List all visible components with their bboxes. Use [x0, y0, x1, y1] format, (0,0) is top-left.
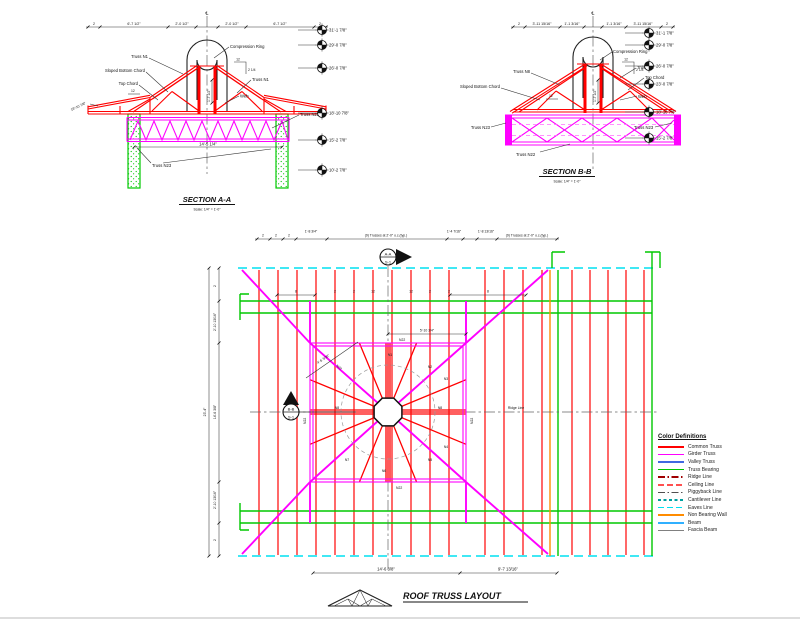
label-girder: Truss N22: [516, 152, 536, 157]
legend-label: Common Truss: [688, 444, 722, 450]
label-eave-elevation: 18'-10 7/8": [70, 101, 87, 112]
dim-label: 1'-8 13/16": [478, 230, 495, 234]
dim-label: 2: [262, 234, 264, 238]
label-compression-ring: Compression Ring: [613, 49, 648, 54]
dim-label: 2: [288, 234, 290, 238]
dim-label: 2: [275, 234, 277, 238]
legend-item: Beam: [658, 519, 754, 527]
label-sloped-bottom-chord: Sloped Bottom Chord: [460, 84, 501, 89]
marker-label: A-A: [385, 252, 392, 257]
radial-label: N3: [444, 377, 448, 381]
legend-label: Valley Truss: [688, 459, 715, 465]
label-web: Web: [240, 94, 249, 99]
marker-sheet: S-1: [288, 415, 295, 420]
elevation-label: 26'-0 7/8": [656, 64, 674, 69]
centerline-symbol: ℄: [591, 11, 596, 16]
legend-item: Truss Bearing: [658, 466, 754, 474]
legend-item: Girder Truss: [658, 451, 754, 459]
truss-mark: 8: [295, 290, 297, 294]
section-a-title: SECTION A-A: [183, 195, 231, 204]
legend-item: Ceiling Line: [658, 481, 754, 489]
n22-left: N22: [303, 418, 307, 424]
girder-dim: 5'-10 3/4": [387, 329, 468, 336]
roof-plan: 2 2 2 1'-8 3/4" (9) Trusses at 2'-0" o.c…: [203, 230, 660, 575]
dim-label: (9) Trusses at 2'-0" o.c.(typ.): [365, 234, 408, 238]
legend-label: Beam: [688, 520, 701, 526]
radial-label: N7: [345, 458, 349, 462]
elevation-label: 10'-2 7/8": [329, 168, 347, 173]
slope-rise: 2 1/4: [248, 68, 256, 72]
dim-label: 1'-1 3/16": [564, 22, 580, 26]
dim-label: 1'-7 1/2": [207, 89, 211, 102]
centerline-symbol: ℄: [205, 11, 210, 16]
legend-label: Ceiling Line: [688, 482, 714, 488]
slope-run: 12: [131, 89, 135, 93]
elevation-label: 29'-0 7/8": [329, 43, 347, 48]
elevation-label: 23'-0 7/8": [656, 82, 674, 87]
legend-label: Cantilever Line: [688, 497, 721, 503]
elevation-label: 31'-1 7/8": [329, 28, 347, 33]
slope-run: 12: [236, 58, 240, 62]
elevation-label: 26'-0 7/8": [329, 66, 347, 71]
legend-label: Piggyback Line: [688, 489, 722, 495]
legend-label: Eaves Line: [688, 505, 713, 511]
girder-webs: [130, 121, 288, 140]
girder-end-left: [505, 115, 512, 145]
dim-label: 6'-7 1/2": [127, 22, 141, 26]
plan-centerlines: [250, 266, 658, 572]
elevation-label: 18'-10 7/8": [656, 110, 676, 115]
elevation-label: 15'-2 7/8": [656, 136, 674, 141]
marker-sheet: S-1: [385, 260, 392, 265]
legend-label: Fascia Beam: [688, 527, 717, 533]
legend-line-sample: [658, 454, 684, 456]
dim-label: 3'-11 15/16": [533, 22, 553, 26]
truss-mark: 2: [429, 290, 431, 294]
plan-top-dims: 2 2 2 1'-8 3/4" (9) Trusses at 2'-0" o.c…: [255, 230, 559, 241]
truss-mark: 2: [334, 290, 336, 294]
n22-right: N22: [470, 418, 474, 424]
truss-marks: 8 2 2 12 12 2 2 8: [276, 290, 528, 297]
elevation-label: 18'-10 7/8": [329, 111, 349, 116]
legend-line-sample: [658, 469, 684, 471]
dim-label: 2: [518, 22, 520, 26]
ring-height-dim: 1'-7 1/2": [207, 79, 214, 105]
legend-item: Cantilever Line: [658, 496, 754, 504]
section-a: ℄ 2 6'-7 1/2" 2'-0 1/2" 2'-0 1/2" 6'-7 1…: [70, 11, 349, 212]
legend-line-sample: [658, 484, 684, 486]
legend-item: Piggyback Line: [658, 489, 754, 497]
label-truss-left: Truss N1: [131, 54, 149, 59]
legend-item: Ridge Line: [658, 473, 754, 481]
section-b-scale: Scale: 1/4" = 1'-0": [554, 180, 582, 184]
label-top-chord: Top Chord: [119, 81, 139, 86]
truss-bearing-lines: [240, 252, 660, 556]
dim-label: 2'-0 1/2": [225, 22, 239, 26]
label-compression-ring: Compression Ring: [230, 44, 265, 49]
section-marker-a: A-A S-1: [380, 249, 412, 265]
dim-label: 5'-10 3/4": [420, 329, 435, 333]
legend-item: Fascia Beam: [658, 527, 754, 535]
label-web: Web: [638, 94, 647, 99]
slope-marker-right: 12 2 1/4: [234, 58, 256, 75]
legend-item: Valley Truss: [658, 458, 754, 466]
slope-run: 12: [549, 94, 553, 98]
label-bearing: Truss N23: [152, 163, 172, 168]
slope-marker-left: 12: [546, 94, 558, 99]
legend-line-sample: [658, 499, 684, 501]
radial-label: N4: [444, 445, 448, 449]
plan-left-dims: 23'-4" 2 2'-10 13/16" 14'-6 3/8" 2'-10 1…: [203, 267, 221, 558]
bearing-wall-left: [128, 114, 140, 188]
dim-label: 2'-10 13/16": [213, 312, 217, 331]
legend-title: Color Definitions: [658, 434, 754, 440]
plan-bottom-dims: 14'-6 3/8" 9'-7 13/16": [312, 567, 559, 575]
legend-line-sample: [658, 530, 684, 532]
dim-label: 1'-4 7/16": [447, 230, 462, 234]
dim-label: 6'-7 1/2": [273, 22, 287, 26]
ring-height-dim: 1'-7 1/2": [593, 79, 600, 105]
dim-label: 1'-7 1/2": [593, 89, 597, 102]
plan-title-block: ROOF TRUSS LAYOUT: [328, 590, 528, 606]
girder-truss: [127, 118, 289, 142]
dim-label: 14'-6 3/8": [377, 567, 395, 572]
legend-label: Non Bearing Wall: [688, 512, 727, 518]
label-bearing-right: Truss N23: [634, 125, 654, 130]
dim-label: 2'-0 1/2": [175, 22, 189, 26]
section-b: ℄ 2 3'-11 15/16" 1'-1 3/16" 1'-1 3/16" 3…: [460, 11, 681, 184]
radial-label: N6: [382, 469, 386, 473]
girder-width-dim: 14'-5 1/4": [133, 142, 284, 149]
legend-line-sample: [658, 492, 684, 494]
radial-label: N8: [438, 406, 442, 410]
girder-end-right: [674, 115, 681, 145]
dim-label: 14'-5 1/4": [199, 142, 217, 147]
legend-label: Ridge Line: [688, 474, 712, 480]
label-bearing-left: Truss N23: [471, 125, 491, 130]
label-sloped-bottom-chord: Sloped Bottom Chord: [105, 68, 146, 73]
legend-item: Common Truss: [658, 443, 754, 451]
radial-label: N8: [335, 406, 339, 410]
dim-label: 2: [93, 22, 95, 26]
color-legend: Color Definitions Common TrussGirder Tru…: [658, 434, 754, 534]
section-marker-b: B-B S-1: [283, 391, 356, 420]
center-octagon: [374, 398, 402, 426]
ridge-line-label: Ridge Line: [508, 406, 524, 410]
legend-line-sample: [658, 522, 684, 524]
legend-label: Truss Bearing: [688, 467, 719, 473]
section-b-title: SECTION B-B: [543, 167, 592, 176]
radial-label: N5: [428, 458, 432, 462]
legend-line-sample: [658, 476, 684, 478]
marker-label: B-B: [288, 407, 295, 412]
dim-label: 2: [666, 22, 668, 26]
truss-mark: 8: [487, 290, 489, 294]
dim-label: 1'-8 3/4": [305, 230, 318, 234]
slope-run: 12: [624, 58, 628, 62]
truss-logo-icon: [328, 590, 392, 606]
section-b-labels: Truss N8 Sloped Bottom Chord Truss N23 C…: [460, 49, 672, 157]
section-a-scale: Scale: 1/4" = 1'-0": [194, 208, 222, 212]
radial-label: N1: [388, 353, 392, 357]
legend-item: Non Bearing Wall: [658, 511, 754, 519]
n22-top: N22: [399, 338, 405, 342]
dim-label: 3'-11 15/16": [634, 22, 654, 26]
dim-label: 2: [213, 285, 217, 287]
legend-line-sample: [658, 461, 684, 463]
truss-mark: 12: [371, 290, 375, 294]
legend-label: Girder Truss: [688, 451, 716, 457]
label-truss-right: Truss N1: [252, 77, 270, 82]
dim-label: 23'-4": [203, 407, 207, 416]
elevation-label: 31'-1 7/8": [656, 31, 674, 36]
drawing-sheet: ℄ 2 6'-7 1/2" 2'-0 1/2" 2'-0 1/2" 6'-7 1…: [0, 0, 800, 624]
legend-line-sample: [658, 514, 684, 516]
elevation-label: 29'-0 7/8": [656, 43, 674, 48]
label-truss-left: Truss N8: [513, 69, 531, 74]
legend-line-sample: [658, 446, 684, 448]
dim-label: 2: [213, 539, 217, 541]
plan-title: ROOF TRUSS LAYOUT: [403, 591, 502, 601]
n22-bottom: N22: [396, 486, 402, 490]
dim-label: 1'-1 3/16": [606, 22, 622, 26]
radial-label: N2: [428, 365, 432, 369]
dim-label: 14'-6 3/8": [213, 404, 217, 419]
truss-mark: 2: [448, 290, 450, 294]
section-a-elevations: 31'-1 7/8" 29'-0 7/8" 26'-0 7/8" 18'-10 …: [298, 24, 349, 177]
dim-label: 2'-10 13/16": [213, 490, 217, 509]
slope-marker-left: 12: [128, 89, 140, 94]
legend-item: Eaves Line: [658, 504, 754, 512]
legend-line-sample: [658, 507, 684, 509]
truss-mark: 12: [409, 290, 413, 294]
truss-mark: 2: [353, 290, 355, 294]
elevation-label: 15'-2 7/8": [329, 138, 347, 143]
dim-label: (9) Trusses at 2'-0" o.c.(typ.): [506, 234, 549, 238]
dim-label: 9'-7 13/16": [498, 567, 518, 572]
